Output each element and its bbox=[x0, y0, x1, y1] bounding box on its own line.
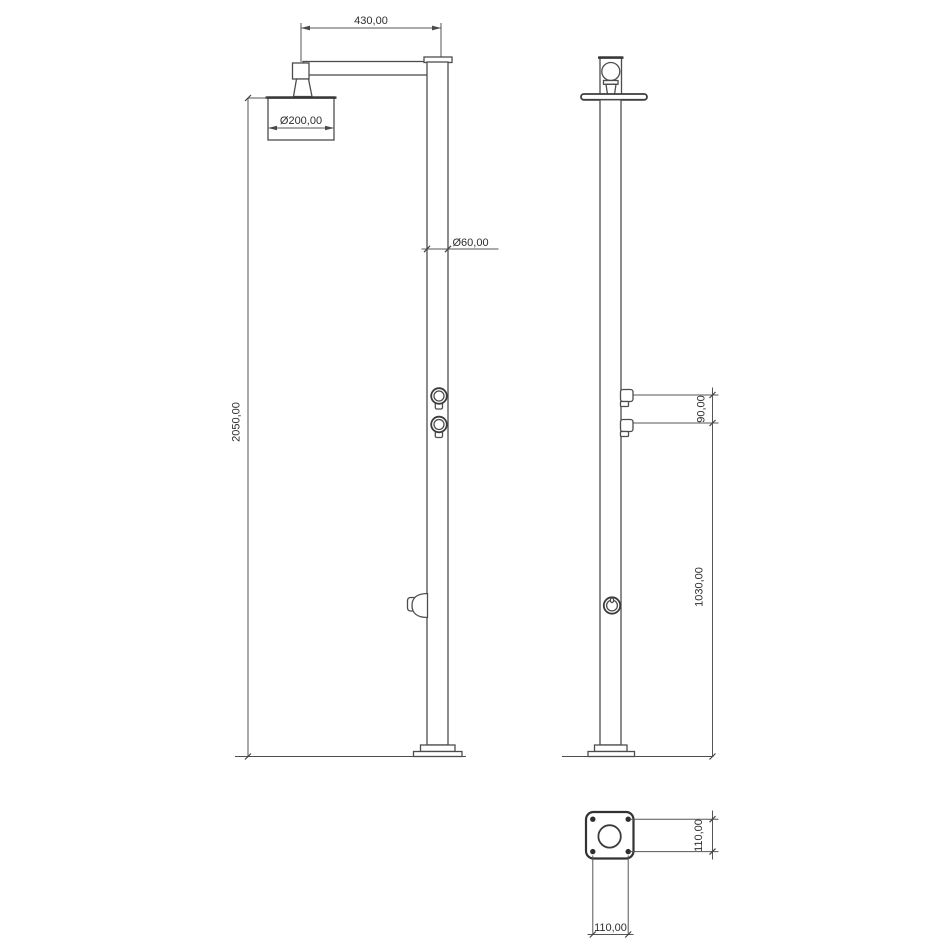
dim-plate-width-label: 110,00 bbox=[594, 922, 627, 934]
head-assembly-side bbox=[581, 57, 647, 100]
dimension-plate-width: 110,00 bbox=[588, 856, 634, 938]
connector-elbow bbox=[293, 63, 310, 79]
head-connector bbox=[293, 63, 313, 97]
knob-side-step bbox=[621, 402, 629, 407]
bolt-hole bbox=[626, 849, 631, 854]
side-view: 90,00 1030,00 bbox=[562, 57, 719, 760]
valve-knob-upper-side bbox=[621, 390, 634, 407]
dim-valve-to-base-label: 1030,00 bbox=[694, 567, 706, 607]
base-flange-front bbox=[414, 745, 463, 757]
shower-arm bbox=[303, 62, 437, 76]
flange-upper bbox=[595, 745, 628, 752]
flange-lower bbox=[414, 752, 463, 757]
pole-side bbox=[600, 100, 621, 745]
bolt-hole bbox=[590, 817, 595, 822]
bolt-hole bbox=[590, 849, 595, 854]
knob-side bbox=[621, 390, 634, 402]
base-plate-view: 110,00 110,00 bbox=[586, 811, 719, 938]
shower-column-technical-drawing: 430,00 Ø200,00 Ø60,00 bbox=[0, 0, 950, 950]
bolt-hole bbox=[626, 817, 631, 822]
arrowhead-left bbox=[301, 26, 310, 31]
shower-head-edge bbox=[581, 94, 647, 100]
connector-cone bbox=[606, 84, 616, 94]
tap-notch bbox=[610, 598, 613, 603]
dimension-valve-spacing: 90,00 1030,00 bbox=[633, 388, 719, 760]
knob-side-step bbox=[621, 432, 629, 437]
foot-tap-front bbox=[408, 594, 428, 618]
dim-valve-spacing-label: 90,00 bbox=[696, 395, 708, 423]
valve-knob-lower-side bbox=[621, 420, 634, 437]
dim-pole-diameter-label: Ø60,00 bbox=[453, 237, 489, 249]
flange-lower bbox=[588, 752, 635, 757]
flange-upper bbox=[421, 745, 456, 752]
tap-body bbox=[412, 594, 428, 618]
knob-side bbox=[621, 420, 634, 432]
swivel-joint bbox=[602, 63, 620, 81]
foot-tap-side bbox=[604, 597, 620, 613]
pole-socket-circle bbox=[598, 825, 620, 847]
dim-plate-height-label: 110,00 bbox=[693, 819, 705, 852]
connector-cone bbox=[294, 79, 313, 97]
dimension-plate-height: 110,00 bbox=[631, 811, 719, 860]
shower-head-front: Ø200,00 bbox=[266, 97, 337, 140]
arrowhead-right bbox=[432, 26, 441, 31]
dim-arm-length-label: 430,00 bbox=[354, 15, 388, 27]
dim-total-height-label: 2050,00 bbox=[231, 402, 243, 442]
dim-head-diameter-label: Ø200,00 bbox=[280, 115, 322, 127]
front-view: 430,00 Ø200,00 Ø60,00 bbox=[231, 15, 499, 760]
base-flange-side bbox=[588, 745, 635, 757]
technical-drawing-page: 430,00 Ø200,00 Ø60,00 bbox=[0, 0, 950, 950]
knob-inner-ring bbox=[434, 420, 444, 430]
knob-inner-ring bbox=[434, 391, 444, 401]
dimension-total-height: 2050,00 bbox=[231, 95, 269, 760]
dimension-arm-length: 430,00 bbox=[301, 15, 441, 62]
